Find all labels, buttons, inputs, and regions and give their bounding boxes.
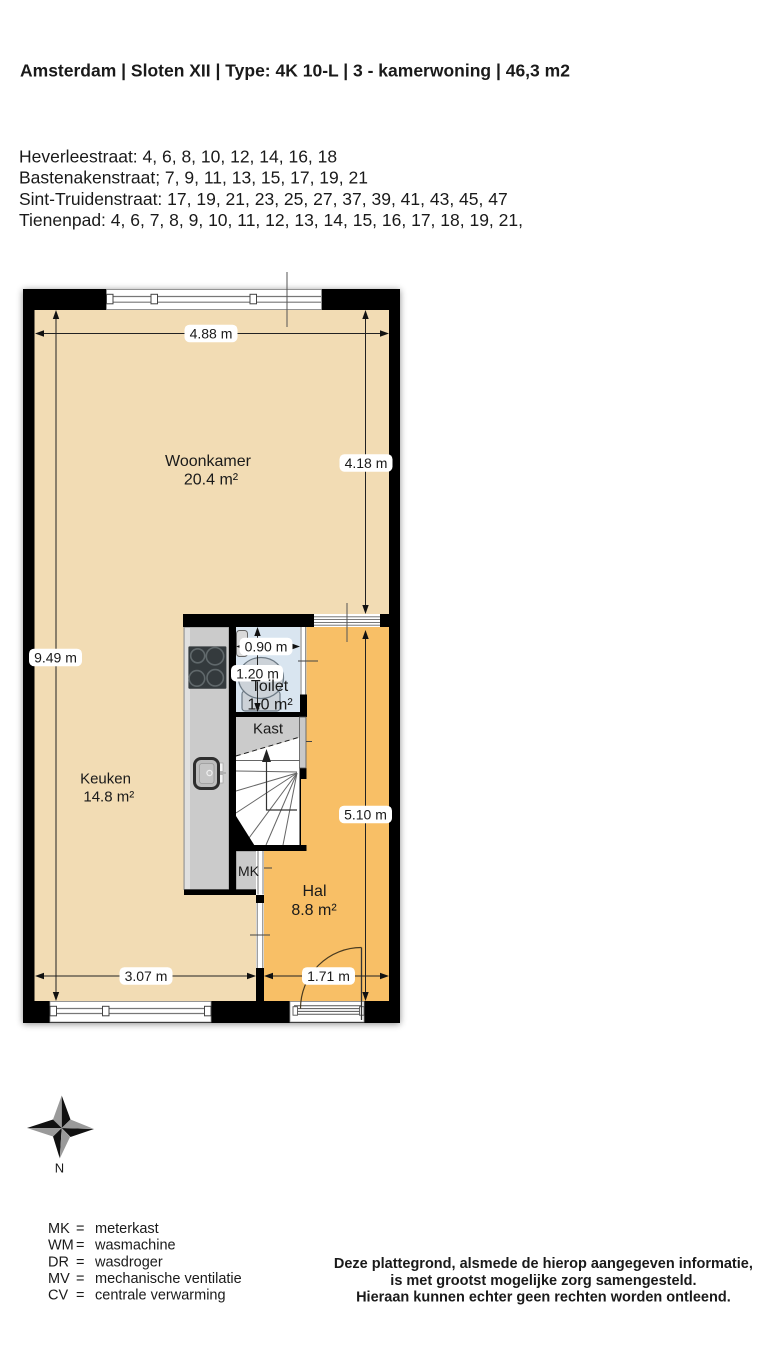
- svg-text:20.4 m²: 20.4 m²: [184, 472, 239, 489]
- svg-text:14.8 m²: 14.8 m²: [83, 789, 134, 806]
- svg-text:5.10 m: 5.10 m: [344, 807, 387, 823]
- svg-text:mechanische ventilatie: mechanische ventilatie: [95, 1271, 242, 1287]
- svg-text:N: N: [55, 1161, 64, 1176]
- svg-text:MK: MK: [238, 863, 260, 879]
- svg-text:1.0 m²: 1.0 m²: [247, 697, 293, 714]
- svg-text:Hieraan kunnen echter geen rec: Hieraan kunnen echter geen rechten worde…: [356, 1290, 731, 1306]
- svg-text:=: =: [76, 1254, 84, 1270]
- svg-text:9.49 m: 9.49 m: [34, 650, 77, 666]
- svg-text:Woonkamer: Woonkamer: [165, 453, 252, 470]
- svg-text:Amsterdam | Sloten XII | Type:: Amsterdam | Sloten XII | Type: 4K 10-L |…: [20, 61, 570, 81]
- svg-text:4.88 m: 4.88 m: [190, 326, 233, 342]
- svg-text:=: =: [76, 1287, 84, 1303]
- svg-text:Bastenakenstraat; 7, 9, 11, 13: Bastenakenstraat; 7, 9, 11, 13, 15, 17, …: [19, 168, 368, 188]
- svg-text:0.90 m: 0.90 m: [245, 639, 288, 655]
- svg-text:MV: MV: [48, 1271, 70, 1287]
- svg-text:Tienenpad: 4, 6, 7, 8, 9, 10,: Tienenpad: 4, 6, 7, 8, 9, 10, 11, 12, 13…: [19, 210, 523, 230]
- svg-text:Deze plattegrond, alsmede de h: Deze plattegrond, alsmede de hierop aang…: [334, 1256, 753, 1272]
- svg-text:MK: MK: [48, 1221, 70, 1237]
- svg-text:1.71 m: 1.71 m: [307, 968, 350, 984]
- svg-text:WM: WM: [48, 1238, 74, 1254]
- svg-text:4.18 m: 4.18 m: [345, 455, 388, 471]
- svg-text:Keuken: Keuken: [80, 771, 131, 788]
- svg-text:Kast: Kast: [253, 721, 284, 738]
- svg-text:Toilet: Toilet: [251, 678, 289, 695]
- svg-text:wasmachine: wasmachine: [94, 1238, 176, 1254]
- svg-text:DR: DR: [48, 1254, 69, 1270]
- svg-text:meterkast: meterkast: [95, 1221, 159, 1237]
- svg-text:3.07 m: 3.07 m: [125, 968, 168, 984]
- svg-text:centrale verwarming: centrale verwarming: [95, 1287, 226, 1303]
- svg-text:is met grootst mogelijke zorg: is met grootst mogelijke zorg samengeste…: [390, 1273, 696, 1289]
- svg-text:=: =: [76, 1271, 84, 1287]
- svg-text:Heverleestraat: 4, 6, 8, 10, 1: Heverleestraat: 4, 6, 8, 10, 12, 14, 16,…: [19, 147, 337, 167]
- svg-text:=: =: [76, 1238, 84, 1254]
- svg-text:CV: CV: [48, 1287, 68, 1303]
- svg-text:Hal: Hal: [302, 883, 326, 900]
- svg-text:wasdroger: wasdroger: [94, 1254, 163, 1270]
- svg-text:8.8 m²: 8.8 m²: [291, 902, 337, 919]
- svg-text:=: =: [76, 1221, 84, 1237]
- svg-text:Sint-Truidenstraat: 17, 19, 21: Sint-Truidenstraat: 17, 19, 21, 23, 25, …: [19, 189, 508, 209]
